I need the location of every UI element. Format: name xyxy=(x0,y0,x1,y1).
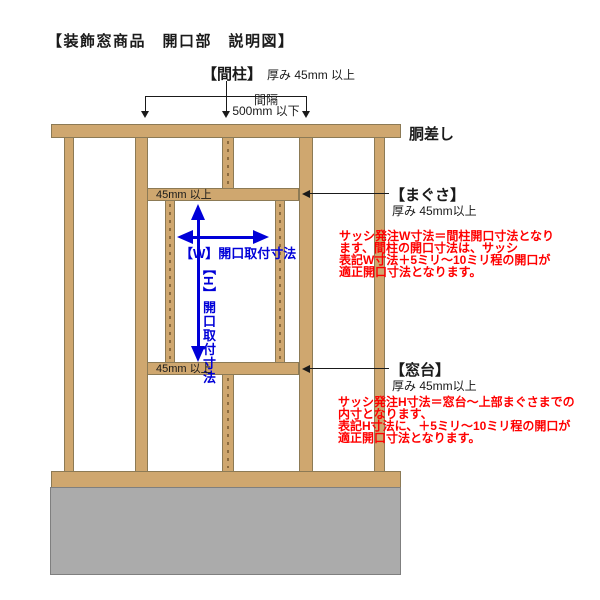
down-arrowhead-icon xyxy=(141,111,149,118)
opening-stud-left xyxy=(165,200,175,363)
opening-stud-right xyxy=(275,200,285,363)
mabashira-label: 【間柱】 xyxy=(202,63,262,84)
sash-w-order-note: サッシ発注W寸法＝間柱開口寸法となり ます、間柱の開口寸法は、サッシ 表記W寸法… xyxy=(339,230,554,278)
dousashi-label: 胴差し xyxy=(409,123,454,144)
magusa-callout-line xyxy=(306,193,389,194)
left-arrowhead-icon xyxy=(302,190,310,198)
w-dimension-arrow-shaft xyxy=(192,236,254,239)
spacing-line2: 500mm 以下 xyxy=(225,106,307,117)
w-note-line: 適正開口寸法となります。 xyxy=(339,266,554,278)
mabashira-spec: 厚み 45mm 以上 xyxy=(267,66,355,83)
bottom-plate xyxy=(51,471,401,488)
left-arrowhead-icon xyxy=(302,365,310,373)
stud-center-lower xyxy=(222,374,234,472)
w-dimension-label: 【W】開口取付寸法 xyxy=(180,243,296,262)
girder-beam xyxy=(51,124,401,138)
concrete-foundation xyxy=(50,487,401,575)
right-arrowhead-icon xyxy=(253,230,269,244)
madodai-spec: 厚み 45mm以上 xyxy=(392,377,477,394)
diagram-title: 【装飾窓商品 開口部 説明図】 xyxy=(47,30,295,51)
h-note-line: 適正開口寸法となります。 xyxy=(338,432,575,444)
stud-center-upper xyxy=(222,137,234,189)
up-arrowhead-icon xyxy=(191,204,205,220)
magusa-spec: 厚み 45mm以上 xyxy=(392,202,477,219)
madodai-callout-line xyxy=(306,368,389,369)
mabashira-arrow-shaft-left xyxy=(145,96,146,112)
stud-spacing-note: 間隔 500mm 以下 xyxy=(225,95,307,117)
stud-right-opening xyxy=(299,137,313,472)
mabashira-connector-line xyxy=(226,81,227,96)
sash-h-order-note: サッシ発注H寸法＝窓台～上部まぐさまでの 内寸となります、 表記H寸法に、＋5ミ… xyxy=(338,396,575,444)
framing-diagram-canvas: 【装飾窓商品 開口部 説明図】 【間柱】 厚み 45mm 以上 間隔 500mm… xyxy=(0,0,600,600)
sill-min-thickness: 45mm 以上 xyxy=(156,364,212,375)
stud-left-outer xyxy=(64,137,74,472)
left-arrowhead-icon xyxy=(177,230,193,244)
lintel-min-thickness: 45mm 以上 xyxy=(156,190,212,201)
